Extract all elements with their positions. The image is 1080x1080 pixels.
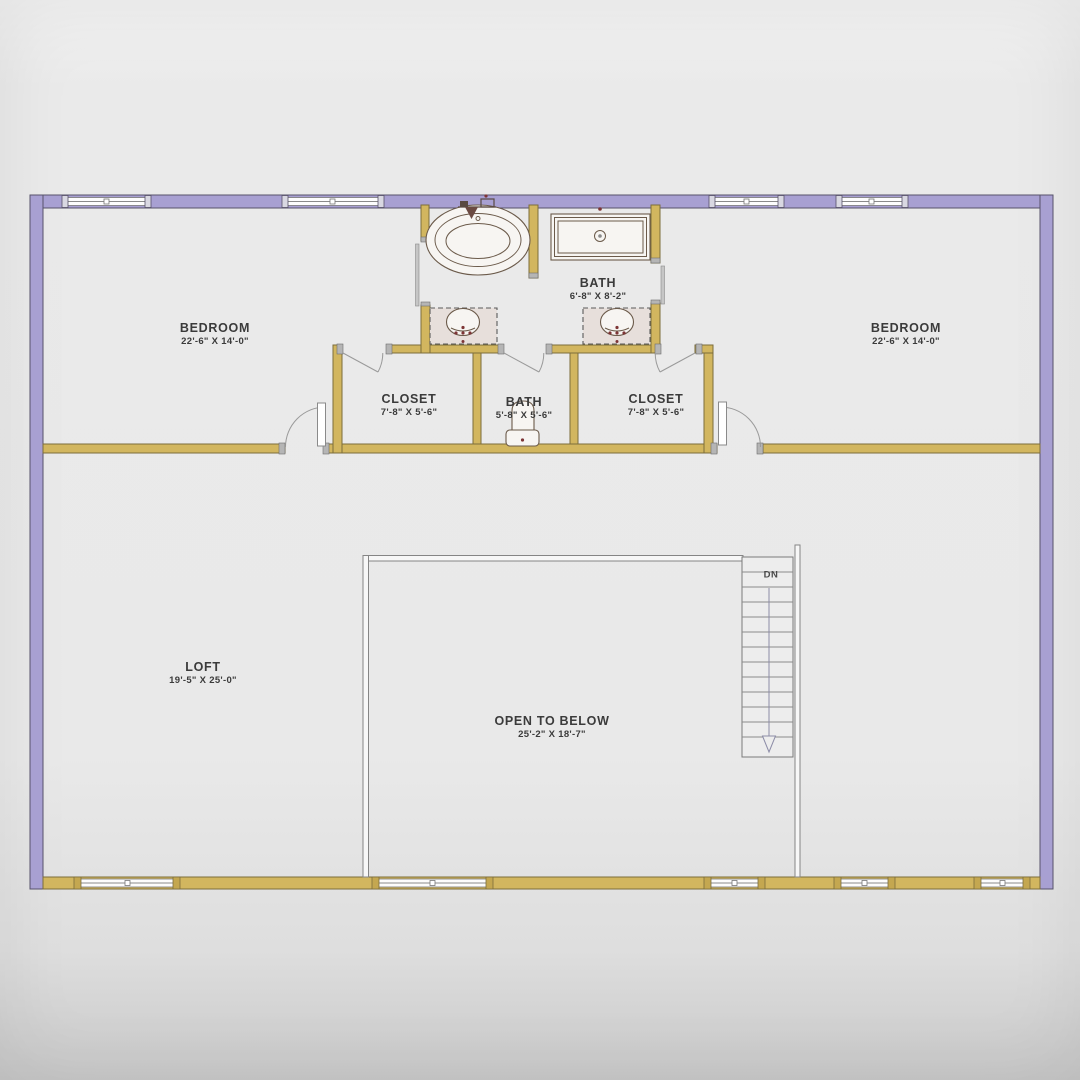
closet-row-wall-right (547, 345, 660, 353)
room-dims: 19'-5" X 25'-0" (169, 675, 237, 686)
room-label-closet-left: CLOSET 7'-8" X 5'-6" (381, 392, 438, 418)
stairs-dn-label: DN (764, 570, 779, 581)
closet-left-door (343, 353, 383, 372)
closet-right-door (655, 353, 695, 372)
window (709, 196, 784, 208)
railing-left (363, 556, 369, 878)
main-wall-left (43, 444, 285, 453)
window (74, 877, 180, 889)
window (834, 877, 895, 889)
window (974, 877, 1030, 889)
room-name: CLOSET (381, 392, 438, 406)
shower-east-wall (651, 205, 660, 263)
room-dims: 22'-6" X 14'-0" (180, 336, 250, 347)
room-label-bath-main: BATH 6'-8" X 8'-2" (570, 276, 627, 302)
bedroom-right-bath-partition (661, 266, 665, 304)
closet-left-west-wall (333, 345, 342, 453)
closet-row-wall-left (387, 345, 503, 353)
window (282, 196, 384, 208)
bath-center-east-wall (570, 353, 578, 444)
room-dims: 6'-8" X 8'-2" (570, 291, 627, 302)
shower (551, 207, 650, 260)
room-name: BATH (570, 276, 627, 290)
shower-head-icon (598, 207, 602, 211)
bath-center-door (504, 353, 544, 372)
railing-top (363, 556, 743, 562)
vanity-left (430, 308, 497, 344)
room-name: BATH (496, 395, 553, 409)
room-label-bedroom-right: BEDROOM 22'-6" X 14'-0" (871, 321, 941, 347)
main-wall-right (763, 444, 1040, 453)
vanity-right (583, 308, 650, 344)
vanity-left-wall (421, 305, 430, 353)
room-name: BEDROOM (871, 321, 941, 335)
bedroom-left-door (286, 403, 326, 447)
floor-plan-drawing (0, 0, 1080, 1080)
left-wall (30, 195, 43, 889)
window (372, 877, 493, 889)
room-label-bath-center: BATH 5'-8" X 5'-6" (496, 395, 553, 421)
room-label-bedroom-left: BEDROOM 22'-6" X 14'-0" (180, 321, 250, 347)
bedroom-right-door (719, 402, 761, 447)
exterior-walls (30, 195, 1053, 889)
room-dims: 5'-8" X 5'-6" (496, 410, 553, 421)
room-name: BEDROOM (180, 321, 250, 335)
window (704, 877, 765, 889)
floor-plan-canvas: BEDROOM 22'-6" X 14'-0" BEDROOM 22'-6" X… (0, 0, 1080, 1080)
stair-east-wall (795, 545, 800, 877)
window (62, 196, 151, 208)
closet-right-east-wall (704, 345, 713, 453)
room-name: CLOSET (628, 392, 685, 406)
room-label-open-to-below: OPEN TO BELOW 25'-2" X 18'-7" (494, 714, 609, 740)
room-dims: 7'-8" X 5'-6" (381, 407, 438, 418)
bedroom-left-bath-partition (416, 244, 420, 306)
staircase (742, 545, 800, 877)
room-label-loft: LOFT 19'-5" X 25'-0" (169, 660, 237, 686)
room-dims: 25'-2" X 18'-7" (494, 729, 609, 740)
room-label-closet-right: CLOSET 7'-8" X 5'-6" (628, 392, 685, 418)
closet-left-east-wall (473, 353, 481, 444)
room-dims: 22'-6" X 14'-0" (871, 336, 941, 347)
room-dims: 7'-8" X 5'-6" (628, 407, 685, 418)
room-name: LOFT (169, 660, 237, 674)
room-name: OPEN TO BELOW (494, 714, 609, 728)
window (836, 196, 908, 208)
right-wall (1040, 195, 1053, 889)
